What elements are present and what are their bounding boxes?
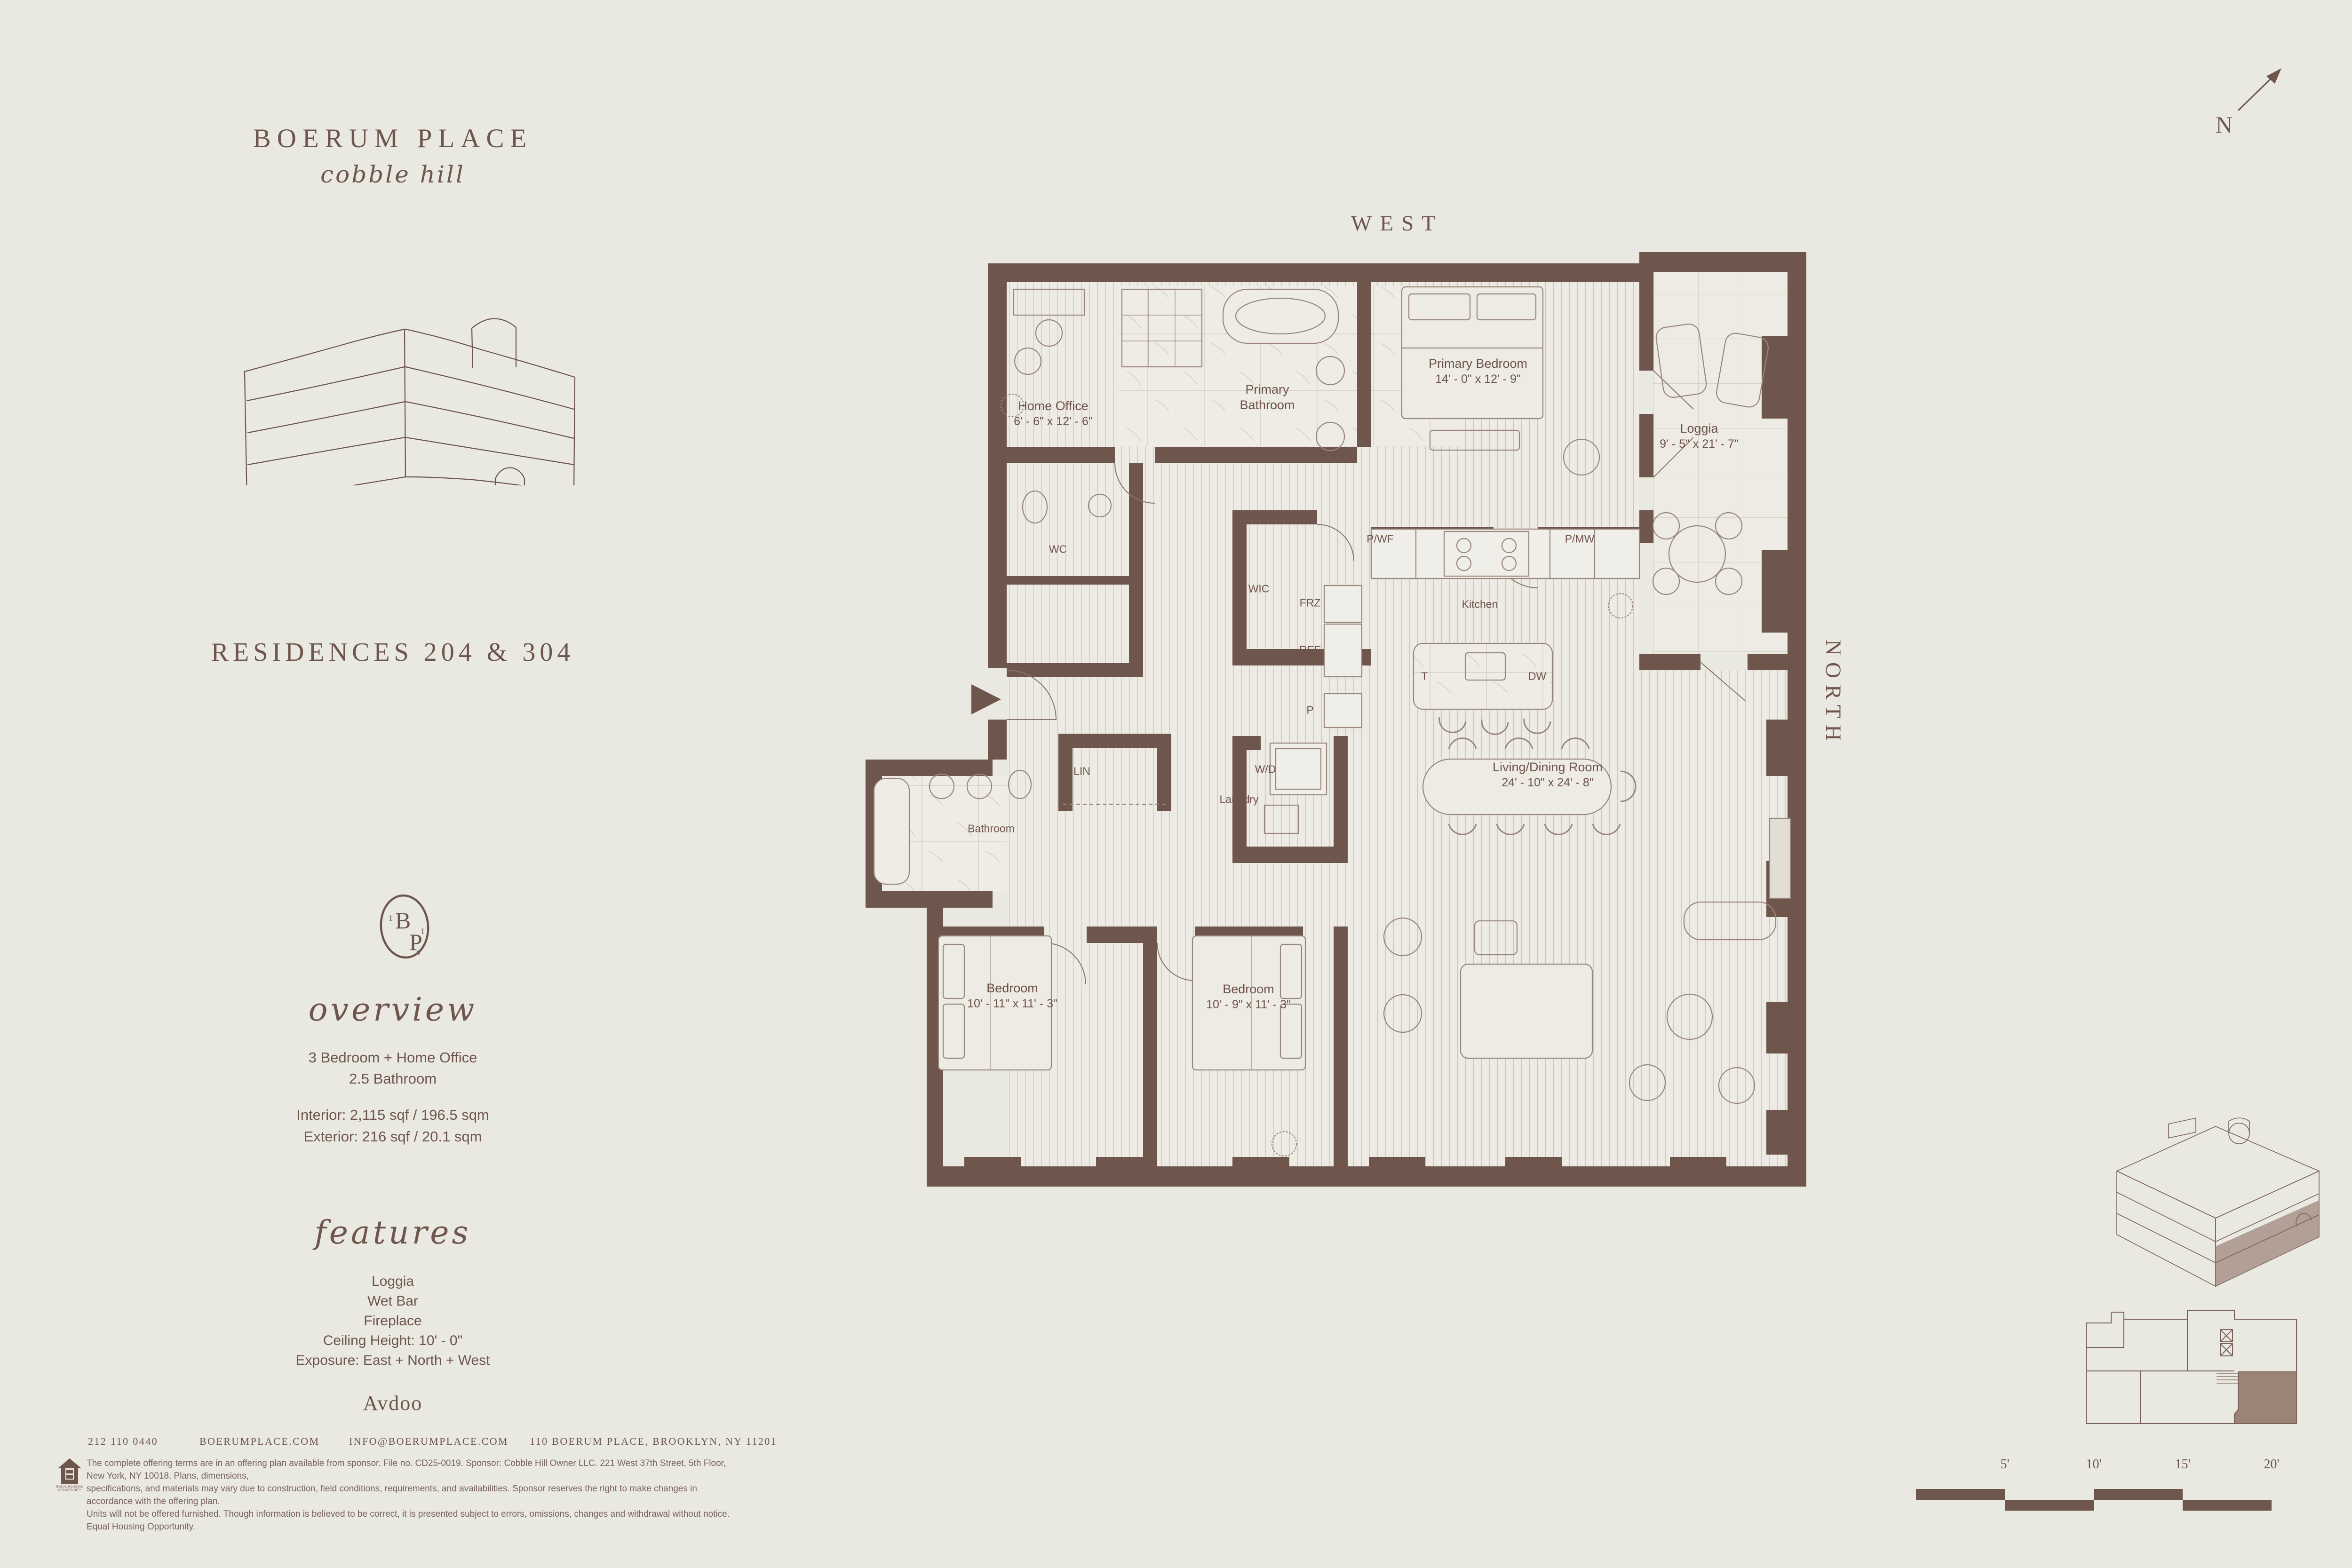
fixture-label-dishwasher: DW — [1528, 670, 1546, 683]
building-sketch-illustration — [219, 293, 600, 485]
room-label-lin: LIN — [1073, 765, 1090, 778]
room-label-primary-bathroom: Primary Bathroom — [1227, 382, 1307, 413]
fixture-label-washer-dryer: W/D — [1255, 763, 1276, 776]
contact-website: BOERUMPLACE.COM — [199, 1435, 319, 1448]
disclaimer-line: specifications, and materials may vary d… — [87, 1482, 740, 1508]
contact-email: INFO@BOERUMPLACE.COM — [349, 1435, 509, 1448]
feature-item: Exposure: East + North + West — [158, 1351, 628, 1370]
entry-marker — [971, 684, 1001, 714]
floor-plan-drawing — [861, 245, 1886, 1195]
bp-monogram: B P 1 1 0 — [371, 885, 441, 970]
fixture-label-pantry-mw: P/MW — [1565, 533, 1595, 546]
svg-text:N: N — [2216, 111, 2233, 138]
room-label-primary-bedroom: Primary Bedroom 14' - 0" x 12' - 9" — [1429, 356, 1527, 387]
room-label-bathroom: Bathroom — [968, 823, 1015, 835]
scale-label: 5' — [2000, 1457, 2009, 1472]
fixture-label-pantry: P — [1306, 704, 1313, 717]
room-label-loggia: Loggia 9' - 5" x 21' - 7" — [1660, 421, 1739, 452]
contact-phone: 212 110 0440 — [88, 1435, 158, 1448]
svg-text:B: B — [395, 907, 411, 934]
svg-text:0: 0 — [417, 949, 421, 957]
legal-disclaimer: The complete offering terms are in an of… — [87, 1457, 740, 1533]
key-plan — [2079, 1305, 2310, 1432]
disclaimer-line: The complete offering terms are in an of… — [87, 1457, 740, 1482]
feature-item: Loggia — [158, 1272, 628, 1291]
scale-label: 15' — [2175, 1457, 2190, 1472]
compass-north-arrow: N — [2197, 52, 2314, 141]
room-label-living-dining: Living/Dining Room 24' - 10" x 24' - 8" — [1493, 760, 1603, 791]
developer-logo: Avdoo — [158, 1391, 628, 1415]
svg-text:1: 1 — [421, 927, 425, 936]
equal-housing-label: EQUAL HOUSING OPPORTUNITY — [56, 1485, 84, 1492]
overview-line-bathrooms: 2.5 Bathroom — [158, 1068, 628, 1089]
room-label-laundry: Laundry — [1219, 793, 1258, 806]
orientation-west: WEST — [1232, 211, 1562, 236]
scale-label: 10' — [2086, 1457, 2101, 1472]
fixture-label-freezer: FRZ — [1300, 597, 1321, 610]
axon-building-illustration — [2084, 1101, 2338, 1289]
exterior-area: Exterior: 216 sqf / 20.1 sqm — [158, 1126, 628, 1148]
fixture-label-trash: T — [1421, 670, 1428, 683]
room-label-home-office: Home Office 6' - 6" x 12' - 6" — [1014, 398, 1093, 429]
room-label-wc: WC — [1049, 543, 1067, 556]
features-list: Loggia Wet Bar Fireplace Ceiling Height:… — [158, 1272, 628, 1370]
disclaimer-line: Units will not be offered furnished. Tho… — [87, 1508, 740, 1533]
room-label-kitchen: Kitchen — [1462, 598, 1498, 611]
scale-label: 20' — [2264, 1457, 2279, 1472]
feature-item: Wet Bar — [158, 1291, 628, 1311]
svg-text:1: 1 — [389, 913, 393, 923]
unit-location-highlight — [2234, 1372, 2296, 1424]
feature-item: Ceiling Height: 10' - 0" — [158, 1331, 628, 1351]
brand-tagline: cobble hill — [158, 161, 628, 188]
feature-item: Fireplace — [158, 1311, 628, 1331]
overview-line-bedrooms: 3 Bedroom + Home Office — [158, 1047, 628, 1068]
scale-bar: 5' 10' 15' 20' — [1916, 1457, 2273, 1513]
room-label-wic: WIC — [1248, 583, 1270, 595]
features-heading: features — [158, 1214, 628, 1251]
overview-heading: overview — [158, 991, 628, 1029]
fixture-label-pantry-wf: P/WF — [1367, 533, 1394, 546]
room-label-bedroom-2: Bedroom 10' - 9" x 11' - 3" — [1206, 982, 1291, 1013]
brand-name: BOERUM PLACE — [158, 123, 628, 154]
interior-area: Interior: 2,115 sqf / 196.5 sqm — [158, 1104, 628, 1126]
room-label-bedroom-1: Bedroom 10' - 11" x 11' - 3" — [967, 981, 1057, 1012]
fixture-label-refrigerator: REF — [1299, 644, 1321, 657]
overview-areas: Interior: 2,115 sqf / 196.5 sqm Exterior… — [158, 1104, 628, 1148]
overview-summary: 3 Bedroom + Home Office 2.5 Bathroom — [158, 1047, 628, 1089]
floor-plan-sheet: BOERUM PLACE cobble hill RESIDENCES 204 … — [0, 0, 2352, 1568]
equal-housing-icon — [57, 1458, 82, 1484]
contact-address: 110 BOERUM PLACE, BROOKLYN, NY 11201 — [530, 1435, 777, 1448]
residence-title: RESIDENCES 204 & 304 — [158, 637, 628, 667]
